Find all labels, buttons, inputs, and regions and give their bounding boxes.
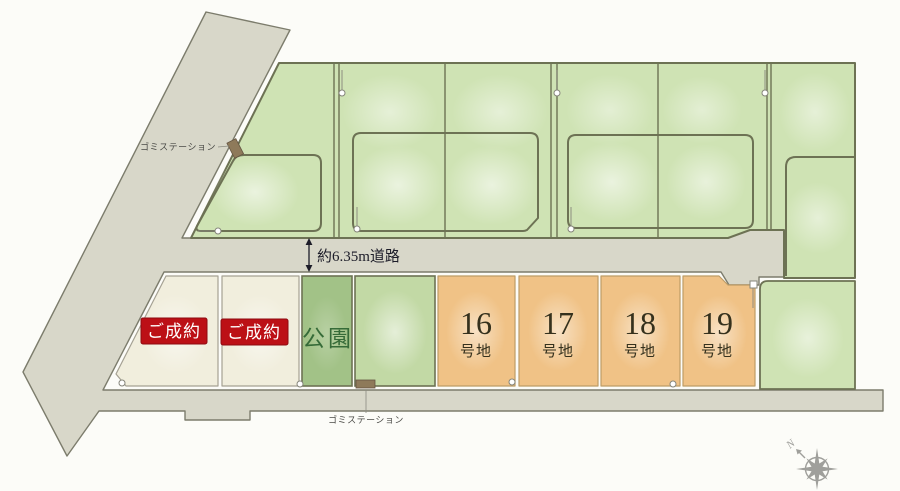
sold-badge-label: ご成約: [227, 323, 281, 342]
plot-glow: [452, 74, 548, 150]
plot-glow: [784, 182, 852, 254]
compass-rose: N: [783, 437, 838, 490]
sold-badge-2: ご成約: [221, 319, 288, 345]
lot-suffix: 号地: [542, 343, 574, 360]
trash-station-label: ゴミステーション: [328, 414, 404, 425]
plot-glow: [772, 298, 844, 378]
compass-north-line: [799, 452, 805, 458]
compass-star: [796, 448, 838, 490]
lot-suffix: 号地: [701, 343, 733, 360]
survey-marker-square: [750, 281, 757, 288]
lot-suffix: 号地: [460, 343, 492, 360]
plot-glow: [446, 145, 538, 225]
lot-19-label: 19 号地: [701, 305, 733, 360]
plot-glow: [342, 74, 438, 150]
lot-16-label: 16 号地: [460, 305, 492, 360]
survey-marker: [215, 228, 221, 234]
survey-marker: [339, 90, 345, 96]
lot-map-svg: ご成約 ご成約 公園 16 号地 17 号地 18 号地 19 号地 約6.35…: [0, 0, 900, 491]
trash-station-rect: [356, 380, 375, 388]
lot-number: 19: [701, 305, 733, 341]
survey-marker: [568, 226, 574, 232]
plot-glow: [666, 144, 746, 220]
plot-glow: [211, 158, 299, 226]
survey-marker: [297, 381, 303, 387]
lot-number: 17: [542, 305, 574, 341]
lot-18-label: 18 号地: [624, 305, 656, 360]
road-width-label: 約6.35m道路: [317, 248, 400, 265]
survey-marker: [119, 380, 125, 386]
plot-glow: [662, 76, 742, 144]
lot-17-label: 17 号地: [542, 305, 574, 360]
survey-marker: [554, 90, 560, 96]
survey-marker: [354, 226, 360, 232]
trash-station-label: ゴミステーション: [140, 141, 216, 152]
plot-glow: [363, 290, 427, 374]
plot-glow: [779, 72, 851, 152]
compass-north-label: N: [783, 437, 798, 452]
sold-badge-1: ご成約: [141, 318, 207, 344]
plot-glow: [352, 145, 444, 225]
lot-map: ご成約 ご成約 公園 16 号地 17 号地 18 号地 19 号地 約6.35…: [0, 0, 900, 491]
lot-number: 16: [460, 305, 492, 341]
sold-badge-label: ご成約: [147, 322, 201, 341]
survey-marker: [509, 379, 515, 385]
survey-marker: [762, 90, 768, 96]
lot-suffix: 号地: [624, 343, 656, 360]
lot-number: 18: [624, 305, 656, 341]
plot-glow: [566, 142, 658, 222]
survey-marker: [670, 381, 676, 387]
park-label: 公園: [302, 326, 354, 351]
